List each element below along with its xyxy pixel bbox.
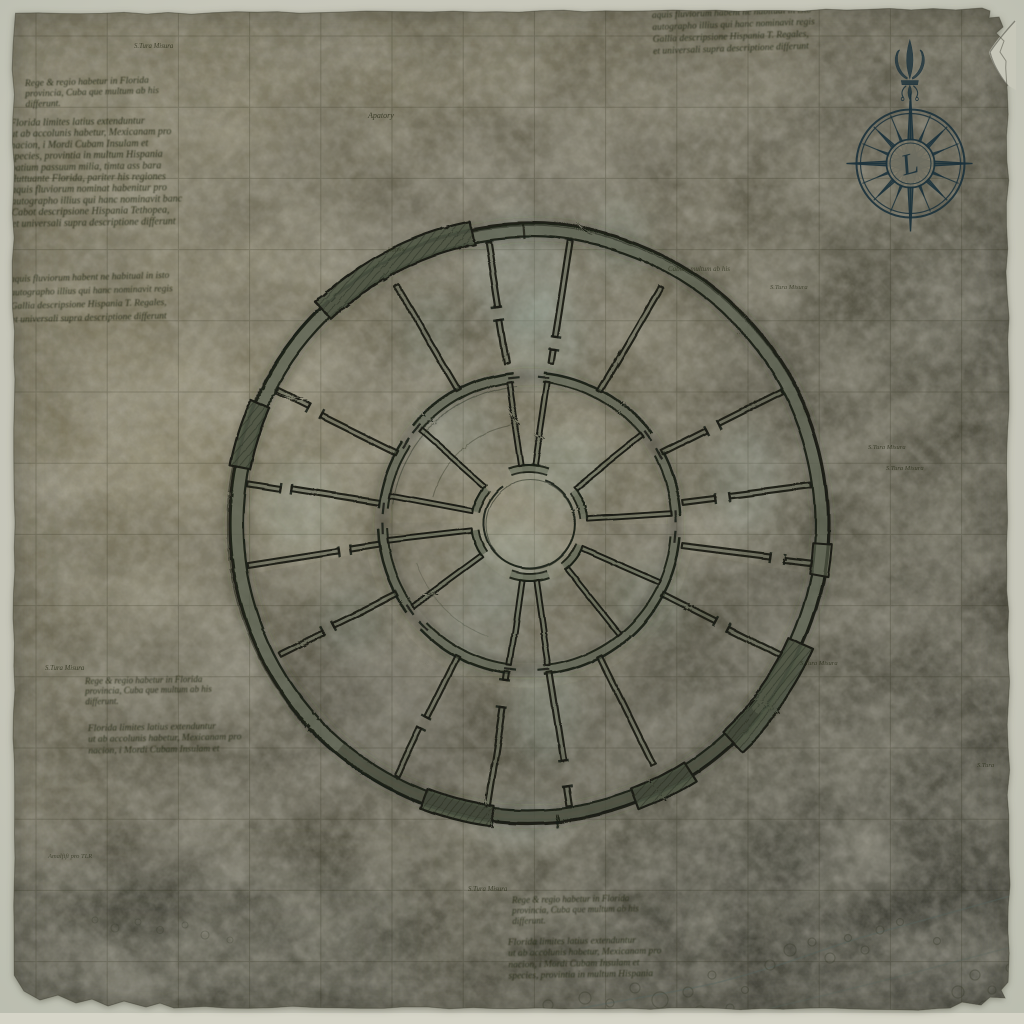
svg-text:S.Tura Misura: S.Tura Misura — [886, 465, 924, 472]
svg-text:humis: humis — [388, 245, 406, 254]
svg-text:differunt.: differunt. — [512, 915, 545, 926]
svg-text:S.Tura Misura: S.Tura Misura — [468, 886, 508, 893]
svg-text:S.Tura Misura: S.Tura Misura — [45, 665, 85, 672]
svg-text:S.Tura: S.Tura — [977, 762, 994, 769]
svg-text:differunt.: differunt. — [25, 98, 60, 110]
svg-text:differunt.: differunt. — [85, 696, 118, 707]
svg-text:S.Tura Misura: S.Tura Misura — [770, 284, 808, 291]
svg-text:S.Tura Misura: S.Tura Misura — [800, 660, 838, 667]
svg-text:Cabota multum ab his: Cabota multum ab his — [668, 265, 730, 273]
svg-text:Apatory: Apatory — [367, 111, 394, 120]
svg-text:S.Tura Misura: S.Tura Misura — [868, 444, 906, 451]
svg-text:Amalfifi pro TLR: Amalfifi pro TLR — [47, 853, 92, 860]
svg-text:S.Tura Misura: S.Tura Misura — [134, 43, 174, 50]
